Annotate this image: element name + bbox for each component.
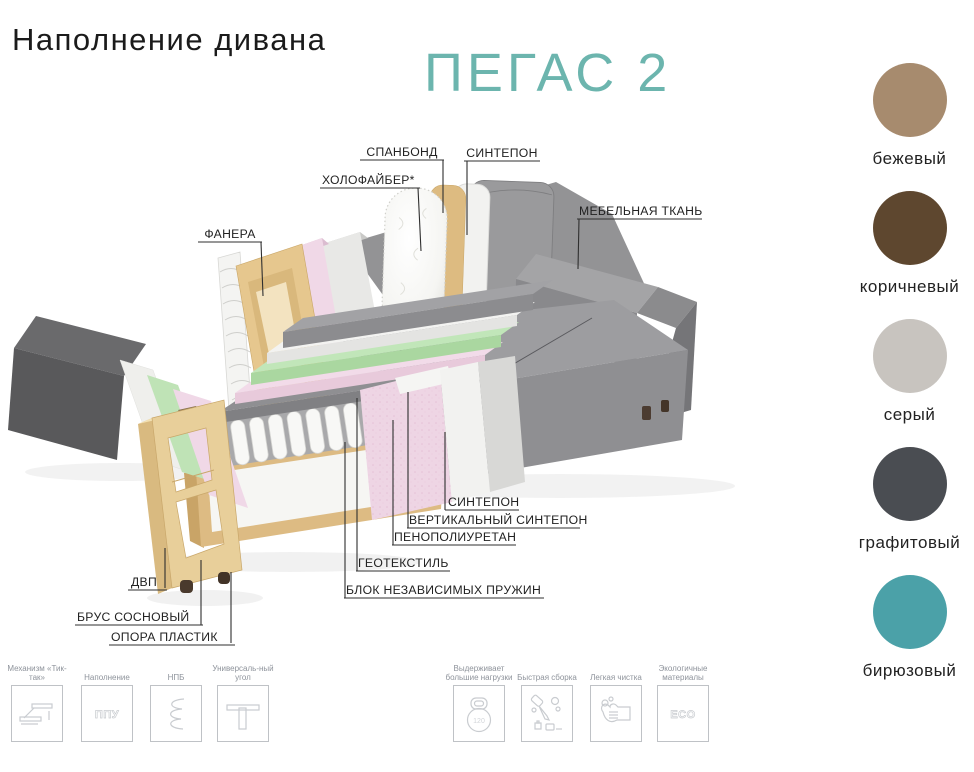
feature-heavy-load: Выдерживает большие нагрузки 120 [443,653,515,742]
feature-npb: НПБ [140,653,212,742]
feature-quick-assembly: Быстрая сборка [511,653,583,742]
label-spanbond: СПАНБОНД [366,145,438,159]
spring-icon [156,694,196,734]
swatch-graphite-circle [873,447,947,521]
label-ppu: ПЕНОПОЛИУРЕТАН [394,530,516,544]
armrest-layers [8,316,248,594]
swatch-label: бежевый [852,149,967,169]
kettlebell-icon: 120 [459,694,499,734]
cleaning-icon [596,694,636,734]
label-vertical-sintepon: ВЕРТИКАЛЬНЫЙ СИНТЕПОН [409,512,588,527]
universal-corner-icon [223,694,263,734]
page-title: Наполнение дивана [12,22,326,58]
tik-tak-mechanism-icon [17,694,57,734]
feature-easy-cleaning: Легкая чистка [580,653,652,742]
swatch-beige: бежевый [852,62,967,169]
swatch-label: серый [852,405,967,425]
feature-universal-corner: Универсаль-ный угол [207,653,279,742]
label-pine-timber: БРУС СОСНОВЫЙ [77,609,189,624]
swatch-turquoise: бирюзовый [852,574,967,681]
sofa-foot [642,406,651,420]
product-name: ПЕГАС 2 [424,42,671,104]
label-dvp: ДВП [131,575,157,589]
plastic-foot [218,572,230,584]
label-sintepon-bottom: СИНТЕПОН [448,495,519,509]
swatch-gray: серый [852,318,967,425]
svg-text:ECO: ECO [670,709,695,721]
label-plastic-support: ОПОРА ПЛАСТИК [111,630,218,644]
swatch-beige-circle [873,63,947,137]
swatch-turquoise-circle [873,575,947,649]
label-geotextile: ГЕОТЕКСТИЛЬ [358,556,449,570]
swatch-gray-circle [873,319,947,393]
label-sintepon-top: СИНТЕПОН [466,146,537,160]
assembly-icon [527,694,567,734]
swatch-brown-circle [873,191,947,265]
feature-eco: Экологичные материалы ECO [647,653,719,742]
ppu-icon: ППУ [87,694,127,734]
swatch-brown: коричневый [852,190,967,297]
sofa-foot [661,400,669,412]
svg-text:120: 120 [473,718,485,725]
label-spring-block: БЛОК НЕЗАВИСИМЫХ ПРУЖИН [346,583,541,597]
label-fabric: МЕБЕЛЬНАЯ ТКАНЬ [579,204,703,218]
swatch-label: графитовый [852,533,967,553]
label-fanera: ФАНЕРА [204,227,256,241]
swatch-graphite: графитовый [852,446,967,553]
svg-text:ППУ: ППУ [95,709,119,721]
plastic-foot [180,580,193,593]
swatch-label: бирюзовый [852,661,967,681]
feature-tik-tak: Механизм «Тик-так» [1,653,73,742]
feature-filling: Наполнение ППУ [71,653,143,742]
swatch-label: коричневый [852,277,967,297]
eco-icon: ECO [663,694,703,734]
label-holofiber: ХОЛОФАЙБЕР* [322,172,415,187]
sofa-exploded-diagram: СПАНБОНД СИНТЕПОН ХОЛОФАЙБЕР* ФАНЕРА МЕБ… [0,120,850,680]
